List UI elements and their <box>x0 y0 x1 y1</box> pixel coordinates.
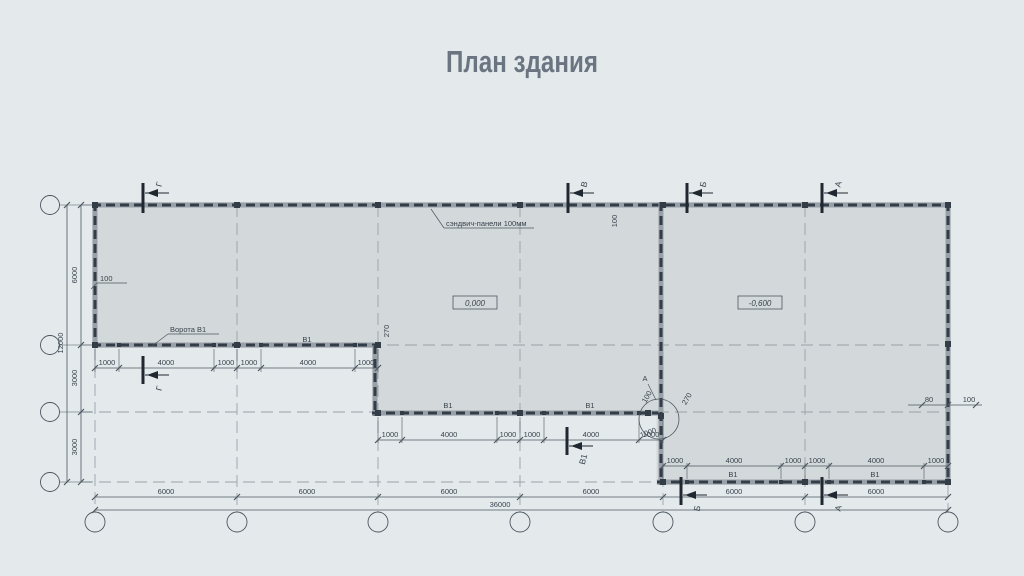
gate-post-marker <box>922 480 926 484</box>
gate-post-marker <box>827 480 831 484</box>
dim-value: 4000 <box>868 456 885 465</box>
plan-label: В1 <box>728 470 737 479</box>
column-marker <box>92 202 98 208</box>
column-marker <box>234 202 240 208</box>
dim-value: 6000 <box>583 487 600 496</box>
dim-value: 80 <box>925 395 933 404</box>
section-mark-bottom-Г-arrow <box>147 371 158 379</box>
elevation-value-2: -0,600 <box>749 299 772 308</box>
dim-value: 6000 <box>441 487 458 496</box>
dim-value: 1000 <box>500 430 517 439</box>
dim-value: 6000 <box>726 487 743 496</box>
axis-circle-undefined <box>795 512 815 532</box>
gate-post-marker <box>117 343 121 347</box>
column-marker <box>517 410 523 416</box>
dim-value: 3000 <box>70 439 79 456</box>
gate-post-marker <box>259 343 263 347</box>
dim-value: 1000 <box>382 430 399 439</box>
dim-value: 4000 <box>300 358 317 367</box>
column-marker <box>945 479 951 485</box>
column-marker <box>234 342 240 348</box>
gate-post-marker <box>779 480 783 484</box>
section-mark-bottom-Б-label: Б <box>692 504 703 512</box>
dim-value: 1000 <box>99 358 116 367</box>
dim-value: 1000 <box>524 430 541 439</box>
callout-text-3: Ворота В1 <box>170 325 206 334</box>
axis-circle-undefined <box>510 512 530 532</box>
gate-post-marker <box>495 411 499 415</box>
dim-value: 4000 <box>441 430 458 439</box>
column-marker <box>375 202 381 208</box>
axis-circle-undefined <box>41 196 60 215</box>
dim-value: 1000 <box>928 456 945 465</box>
axis-circle-undefined <box>368 512 388 532</box>
plan-label: В1 <box>443 401 452 410</box>
column-marker <box>945 202 951 208</box>
dim-value: 6000 <box>158 487 175 496</box>
column-marker <box>802 479 808 485</box>
gate-post-marker <box>400 411 404 415</box>
floor-plan: 1000400010001000400010001000400010001000… <box>0 0 1024 576</box>
dim-value: 4000 <box>158 358 175 367</box>
elevation-value-1: 0,000 <box>465 299 486 308</box>
axis-circle-undefined <box>227 512 247 532</box>
dim-value: 100 <box>963 395 976 404</box>
gate-post-marker <box>353 343 357 347</box>
dim-value: 1000 <box>358 358 375 367</box>
gate-post-marker <box>542 411 546 415</box>
column-marker <box>802 202 808 208</box>
column-marker <box>660 202 666 208</box>
axis-circle-undefined <box>41 403 60 422</box>
plan-label: А <box>642 374 647 383</box>
dim-value: 6000 <box>299 487 316 496</box>
section-mark-bottom-Б-arrow <box>685 491 696 499</box>
section-mark-bottom-А-arrow <box>826 491 837 499</box>
column-marker <box>375 342 381 348</box>
dim-value: 4000 <box>583 430 600 439</box>
column-marker <box>517 202 523 208</box>
callout-text-1: сэндвич-панели 100мм <box>446 219 527 228</box>
section-mark-top-А-label: А <box>833 180 844 188</box>
plan-label: В1 <box>870 470 879 479</box>
dim-value: 1000 <box>218 358 235 367</box>
section-mark-top-В-arrow <box>572 189 583 197</box>
dim-value: 1000 <box>785 456 802 465</box>
dim-value: 1000 <box>667 456 684 465</box>
section-mark-top-В-label: В <box>579 180 590 188</box>
plan-label: В1 <box>585 401 594 410</box>
section-mark-bottom-Г-label: Г <box>154 384 165 391</box>
dim-value: 1000 <box>241 358 258 367</box>
section-mark-top-Б-label: Б <box>698 180 709 188</box>
axis-circle-undefined <box>41 473 60 492</box>
section-mark-top-Г-arrow <box>147 189 158 197</box>
column-marker <box>92 342 98 348</box>
column-marker <box>660 479 666 485</box>
dim-value: 100 <box>610 215 619 228</box>
column-marker <box>375 410 381 416</box>
dim-value: 1000 <box>809 456 826 465</box>
gate-post-marker <box>685 480 689 484</box>
gate-post-marker <box>212 343 216 347</box>
section-mark-bottom-В1-arrow <box>571 442 582 450</box>
dim-value: 270 <box>382 325 391 338</box>
callout-text-2: 100 <box>100 274 113 283</box>
axis-circle-undefined <box>85 512 105 532</box>
axis-circle-undefined <box>938 512 958 532</box>
section-mark-bottom-А-label: А <box>833 504 844 512</box>
section-mark-top-Г-label: Г <box>154 180 165 187</box>
axis-circle-undefined <box>653 512 673 532</box>
dim-value: 4000 <box>726 456 743 465</box>
dim-value: 3000 <box>70 370 79 387</box>
plan-label: В1 <box>302 335 311 344</box>
dim-value: 6000 <box>868 487 885 496</box>
section-mark-top-Б-arrow <box>691 189 702 197</box>
dim-value: 36000 <box>490 500 511 509</box>
dim-value: 6000 <box>70 267 79 284</box>
column-marker <box>645 410 651 416</box>
section-mark-top-А-arrow <box>826 189 837 197</box>
column-marker <box>945 341 951 347</box>
section-mark-bottom-В1-label: В1 <box>577 453 589 466</box>
